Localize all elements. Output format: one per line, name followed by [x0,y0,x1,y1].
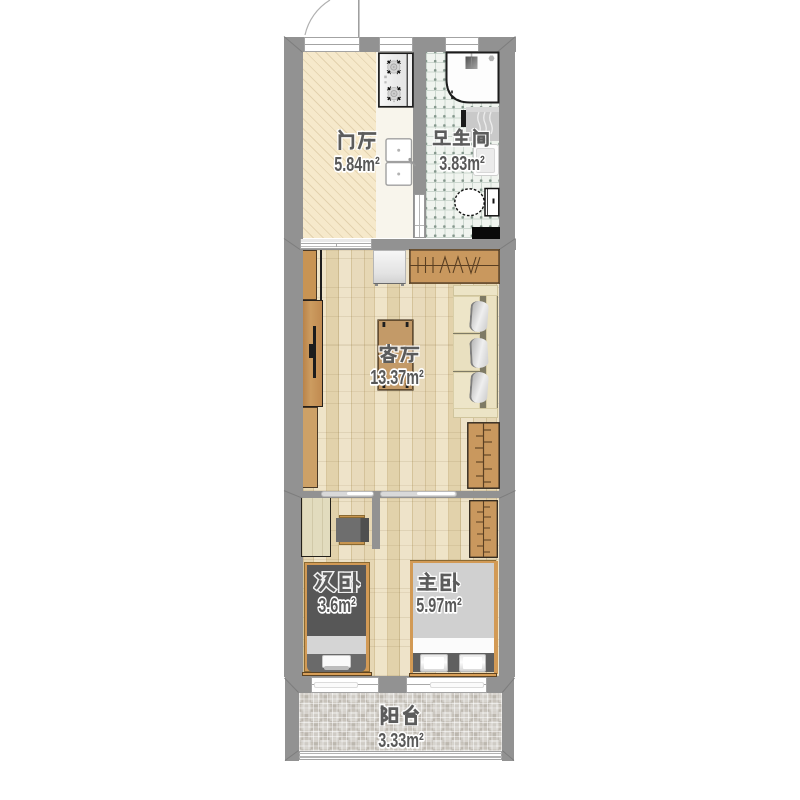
svg-text:13.37m²: 13.37m² [370,366,424,389]
svg-text:3.33m²: 3.33m² [378,728,424,751]
svg-text:3.6m²: 3.6m² [318,594,356,617]
svg-text:5.97m²: 5.97m² [416,593,462,616]
svg-text:5.84m²: 5.84m² [334,152,380,175]
svg-text:3.83m²: 3.83m² [439,152,485,175]
